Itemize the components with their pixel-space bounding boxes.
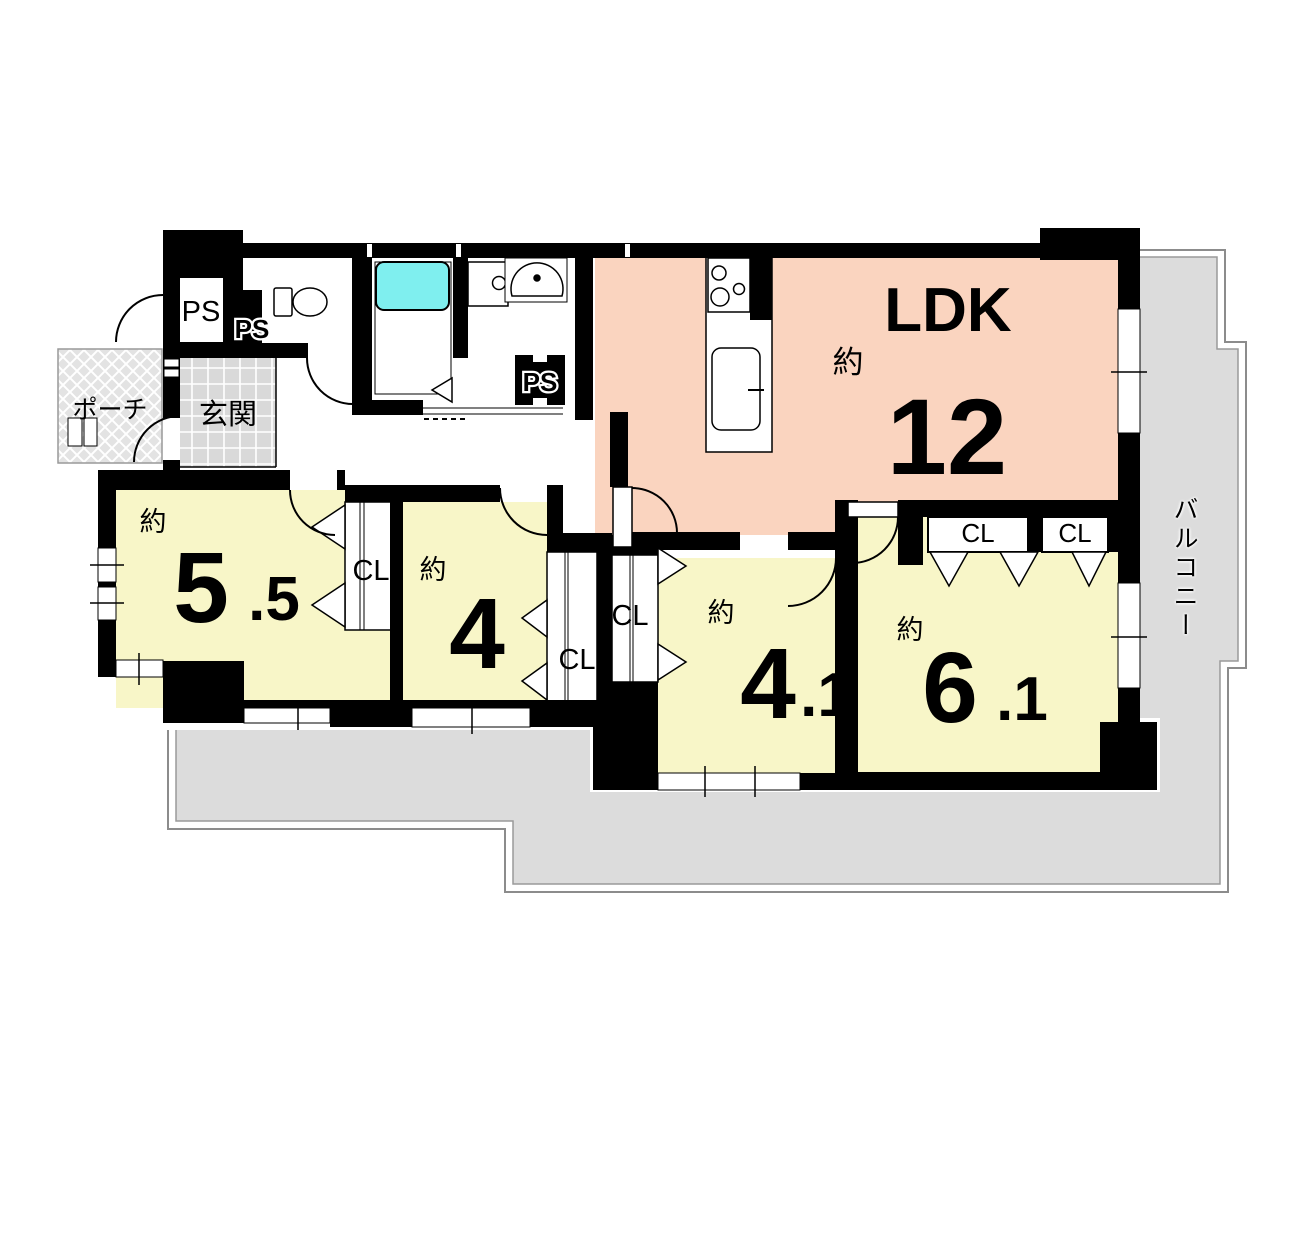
closet-label: CL	[558, 644, 595, 676]
ps-label: PS	[523, 367, 558, 397]
room-41-approx: 約	[708, 598, 735, 628]
room-55-size: 5	[173, 532, 229, 644]
ps-notch	[533, 355, 547, 362]
porch-label: ポーチ	[72, 396, 147, 424]
door-leaf	[848, 502, 898, 517]
washer-drain-icon	[493, 277, 506, 290]
room-ldk-floor	[595, 258, 1118, 535]
burner-icon	[734, 284, 745, 295]
ldk-name: LDK	[884, 276, 1012, 345]
ps-label: PS	[182, 296, 221, 328]
burner-icon	[711, 288, 729, 306]
balcony-label: バルコニー	[1166, 496, 1202, 641]
toilet-tank	[274, 288, 292, 316]
closet-label: CL	[352, 555, 389, 587]
ps-label: PS	[235, 314, 270, 344]
ldk-size: 12	[887, 376, 1007, 497]
window	[658, 773, 800, 790]
window	[1118, 309, 1140, 433]
room-41-size-frac: .1	[800, 661, 852, 730]
toilet-bowl	[293, 288, 327, 316]
burner-icon	[712, 266, 726, 280]
floorplan-page: PS PS PS ポーチ 玄関 LDK 約 12 約 5 .5 約 4 約 4 …	[0, 0, 1300, 1241]
room-61-size-frac: .1	[996, 665, 1048, 734]
bathtub	[376, 262, 449, 310]
room-4-approx: 約	[420, 555, 447, 585]
room-55-approx: 約	[140, 507, 167, 537]
ps-notch	[533, 398, 547, 405]
room-61-approx: 約	[897, 615, 924, 645]
window	[1118, 583, 1140, 688]
floorplan-drawing: PS PS PS ポーチ 玄関 LDK 約 12 約 5 .5 約 4 約 4 …	[0, 0, 1300, 1241]
wall-joint	[367, 244, 372, 257]
closet-label: CL	[961, 518, 994, 548]
room-61-size: 6	[922, 632, 978, 744]
room-4-size: 4	[449, 578, 505, 690]
closet-label: CL	[611, 600, 648, 632]
ldk-approx: 約	[833, 345, 864, 380]
window	[412, 708, 530, 727]
room-41-size: 4	[740, 628, 796, 740]
room-55-size-frac: .5	[248, 565, 300, 634]
window	[244, 708, 330, 723]
closet-label: CL	[1058, 518, 1091, 548]
door-sill	[164, 359, 179, 367]
wall-joint	[456, 244, 461, 257]
entrance-label: 玄関	[199, 398, 257, 431]
wall-joint	[625, 244, 630, 257]
closet-4	[547, 552, 597, 702]
door-sill	[164, 369, 179, 377]
door-leaf	[613, 487, 632, 547]
washbasin-faucet-icon	[534, 275, 540, 281]
